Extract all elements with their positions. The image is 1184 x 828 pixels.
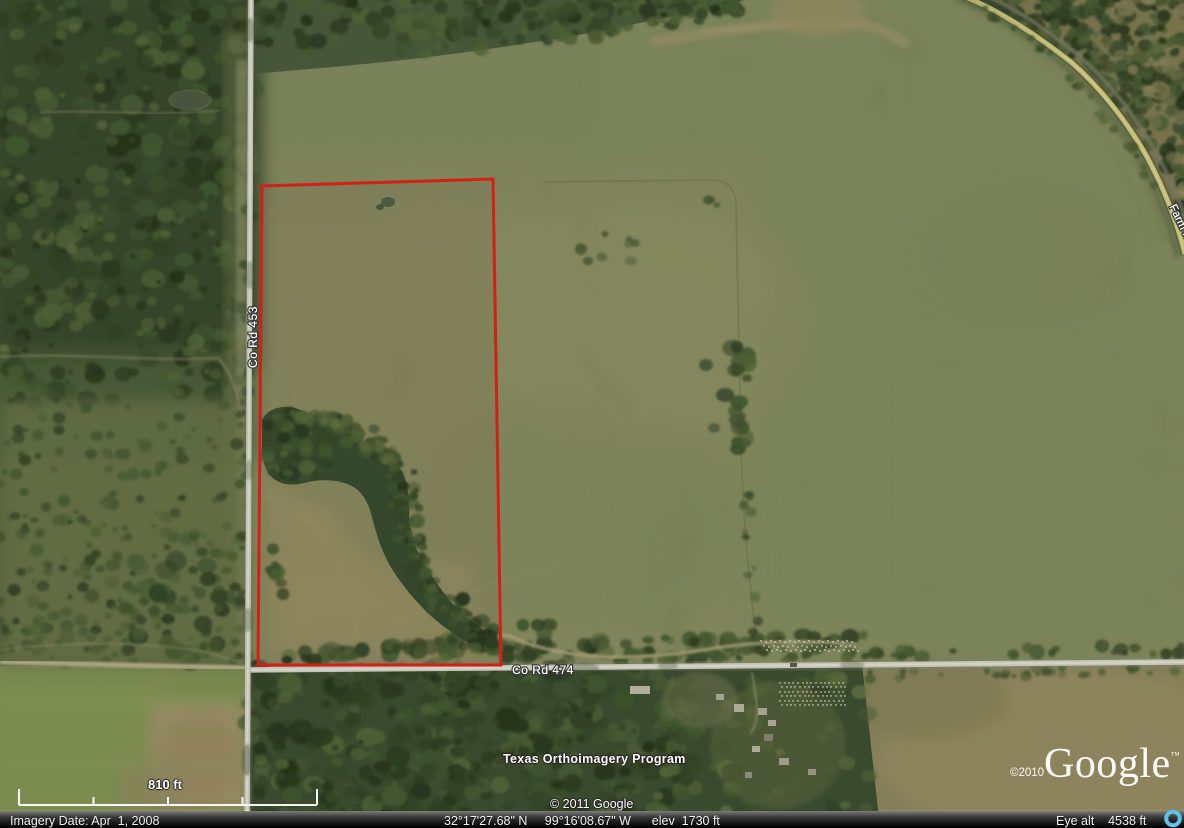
svg-text:Co Rd 453: Co Rd 453	[246, 306, 260, 368]
svg-text:Co Rd 474: Co Rd 474	[512, 663, 574, 677]
